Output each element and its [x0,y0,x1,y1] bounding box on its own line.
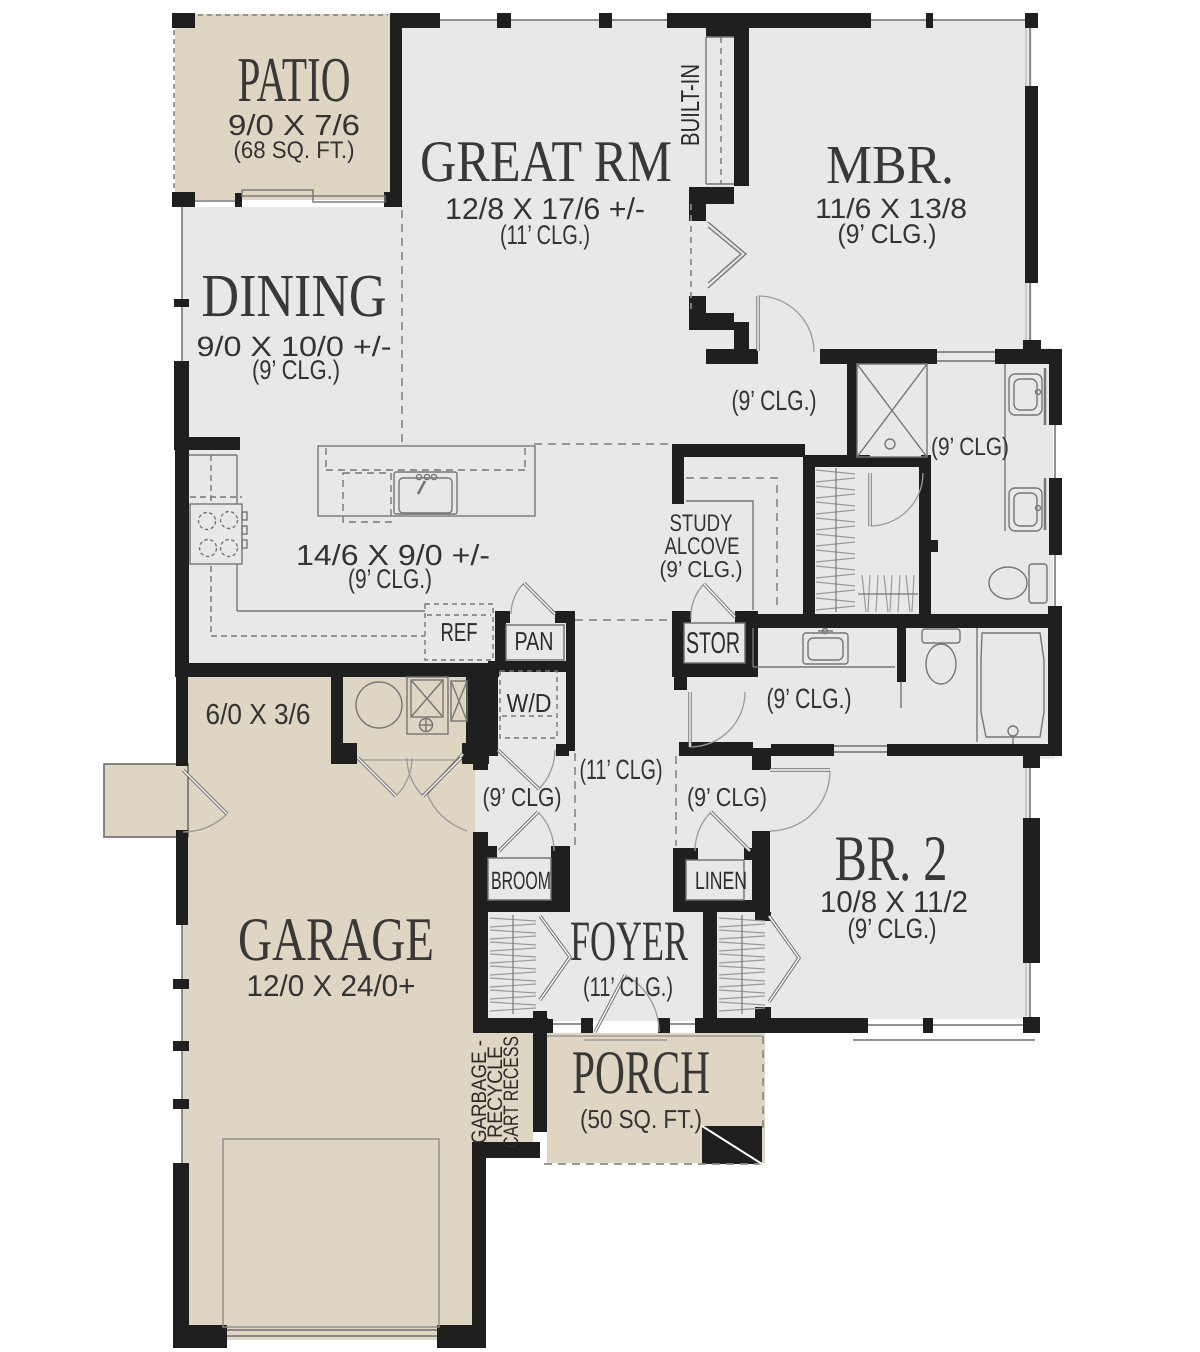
svg-text:(9’ CLG.): (9’ CLG.) [848,913,937,944]
svg-text:(9’ CLG): (9’ CLG) [483,782,562,812]
svg-text:W/D: W/D [507,688,552,718]
svg-text:CART RECESS: CART RECESS [500,1036,523,1148]
svg-text:12/0 X 24/0+: 12/0 X 24/0+ [247,970,416,1003]
svg-text:6/0 X 3/6: 6/0 X 3/6 [206,699,311,731]
svg-text:MBR.: MBR. [826,134,954,195]
svg-text:LINEN: LINEN [695,867,747,895]
svg-text:(50 SQ. FT.): (50 SQ. FT.) [580,1104,702,1134]
svg-text:DINING: DINING [202,263,387,330]
svg-text:BR. 2: BR. 2 [835,823,948,895]
svg-text:(9’ CLG.): (9’ CLG.) [660,556,743,582]
svg-text:(9’ CLG.): (9’ CLG.) [767,683,852,714]
svg-text:(9’ CLG.): (9’ CLG.) [252,355,340,385]
svg-text:PAN: PAN [515,626,554,656]
svg-text:(11’ CLG.): (11’ CLG.) [583,972,673,1002]
svg-text:STOR: STOR [686,627,740,660]
svg-text:(9’ CLG): (9’ CLG) [931,433,1009,461]
svg-text:REF: REF [441,617,478,647]
svg-text:(9’ CLG.): (9’ CLG.) [838,219,937,249]
svg-text:GREAT RM: GREAT RM [420,128,672,194]
svg-text:PATIO: PATIO [238,44,351,115]
svg-text:BUILT-IN: BUILT-IN [675,64,705,146]
svg-text:(9’ CLG): (9’ CLG) [687,782,767,812]
svg-text:(11’ CLG): (11’ CLG) [580,754,663,785]
svg-text:PORCH: PORCH [572,1039,710,1107]
svg-text:GARAGE: GARAGE [238,906,434,974]
svg-text:(9’ CLG.): (9’ CLG.) [732,385,817,416]
svg-text:(9’ CLG.): (9’ CLG.) [348,564,432,594]
svg-text:FOYER: FOYER [570,910,688,973]
svg-text:BROOM: BROOM [491,867,551,895]
svg-text:(11’ CLG.): (11’ CLG.) [500,220,590,250]
svg-text:(68 SQ. FT.): (68 SQ. FT.) [234,137,355,164]
